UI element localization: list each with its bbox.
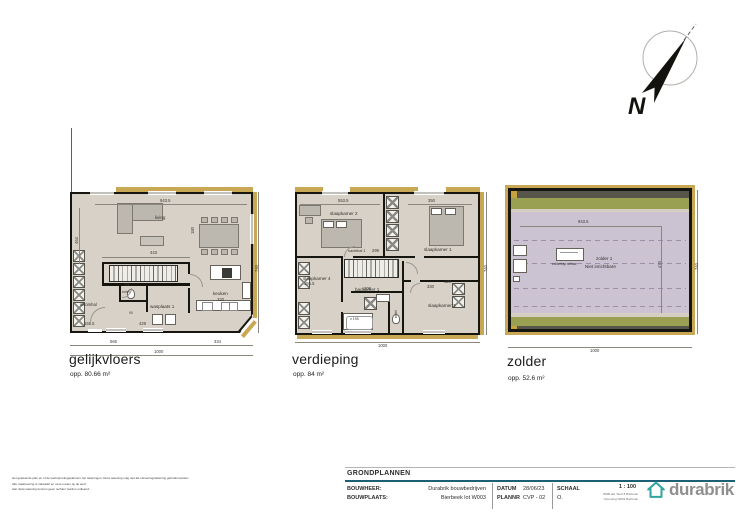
plan-area: opp. 80.66 m² [70, 371, 110, 378]
dim-line [295, 342, 480, 343]
dim-label: 943.5 [578, 220, 588, 224]
duct [513, 276, 520, 282]
dim-line [486, 192, 487, 335]
compass-rose: N [612, 14, 716, 118]
closet [73, 276, 85, 288]
dim-label: 330 [427, 285, 434, 289]
durabrik-logo-house-icon [645, 479, 667, 501]
interior-wall [297, 256, 341, 258]
disclaimer-line: Alle maatvoering is indicatief en na te … [12, 483, 87, 486]
closet [386, 238, 399, 251]
coffee-table [140, 236, 164, 246]
room-label: Niet inrichtbare [585, 265, 616, 270]
titleblock-section: GRONDPLANNEN [347, 470, 411, 477]
dim-label: 180 [191, 227, 195, 234]
duct [513, 259, 527, 273]
dim-line [79, 208, 80, 264]
dim-line [520, 226, 662, 227]
dim-label: 1000 [154, 350, 163, 354]
plan-title: verdieping [292, 351, 359, 367]
datum-label: DATUM [497, 486, 516, 492]
closet [73, 263, 85, 275]
closet [73, 289, 85, 301]
interior-wall [146, 302, 148, 312]
dim-line [408, 204, 472, 205]
room-label: zoldertrap schaar [552, 263, 577, 266]
dim-line [102, 257, 190, 258]
chair [201, 249, 208, 255]
dim-label: x 195 [350, 318, 359, 322]
dim-label: 1000 [378, 344, 387, 348]
chair [211, 249, 218, 255]
pillow [431, 208, 442, 215]
chair [201, 217, 208, 223]
dim-line [661, 226, 662, 313]
chair [221, 249, 228, 255]
plan-title: zolder [507, 353, 546, 369]
sofa-chaise [117, 203, 133, 234]
bouwheer-value: Durabrik bouwbedrijven [400, 486, 486, 492]
room-label: toilet [122, 291, 130, 295]
interior-wall [102, 262, 190, 264]
interior-wall [188, 262, 190, 274]
dim-line [300, 204, 380, 205]
room-label: slaapkamer 4 [303, 277, 331, 282]
facade-cladding [350, 187, 418, 192]
interior-wall [102, 262, 104, 286]
dishwasher [202, 302, 213, 311]
dim-label: 553.5 [338, 199, 348, 203]
desk [299, 205, 321, 216]
roof-band [511, 198, 689, 209]
washing-machine [152, 314, 163, 325]
room-label: slaapkamer 1 [424, 248, 452, 253]
pillow [445, 208, 456, 215]
roof-band [511, 317, 689, 326]
plan-area: opp. 52.6 m² [508, 375, 545, 382]
closet [452, 283, 465, 295]
dim-label: 120 [444, 280, 451, 284]
plan-title: gelijkvloers [69, 351, 141, 367]
dim-line [258, 192, 259, 333]
room-label: keuken [213, 292, 228, 297]
dim-label: 740 [695, 263, 699, 270]
window [345, 330, 371, 334]
interior-wall [383, 194, 385, 256]
dim-label: 1000 [590, 349, 599, 353]
chair [305, 217, 313, 224]
closet [386, 196, 399, 209]
dim-label: 350 [428, 199, 435, 203]
plannr-value: CVP - 02 [523, 495, 545, 501]
roof-band-accent [511, 191, 517, 198]
room-label: inkomhal [80, 303, 97, 307]
interior-wall [424, 256, 480, 258]
schaal-value: 1 : 100 [600, 484, 636, 490]
window [312, 330, 332, 334]
chair [231, 217, 238, 223]
facade-cladding [446, 187, 480, 192]
window [414, 191, 444, 195]
facade-cladding [253, 192, 257, 318]
dim-line [70, 345, 253, 346]
dim-label: 155.5 [304, 282, 314, 286]
window [90, 191, 114, 195]
interior-wall [119, 300, 148, 302]
dim-label: 740 [255, 265, 259, 272]
compass-north-label: N [628, 93, 646, 118]
roof-band [511, 326, 689, 329]
room-dim: 320 [217, 298, 224, 302]
schaal-sub: O. [557, 495, 563, 501]
room-label: badkamer 1 [355, 288, 379, 293]
staircase [109, 265, 178, 282]
dim-label: 151 [124, 284, 130, 287]
closet [73, 315, 85, 327]
window [250, 214, 254, 244]
plan-area: opp. 84 m² [293, 371, 324, 378]
closet [298, 316, 310, 329]
fine-print: Opmeting W003 Bierbeek [574, 497, 638, 501]
pillow [336, 221, 347, 228]
dim-line [95, 204, 247, 205]
roof-band-accent [511, 326, 517, 329]
bouwplaats-value: Bierbeek lot W003 [400, 495, 486, 501]
titleblock-divider [552, 483, 553, 509]
dim-label: 334 [214, 340, 221, 344]
facade-cladding [295, 187, 323, 192]
dim-line [508, 347, 692, 348]
facade-cladding [297, 335, 478, 339]
window [148, 191, 176, 195]
sink [376, 294, 390, 302]
datum-value: 28/06/23 [523, 486, 544, 492]
front-door-opening [88, 329, 102, 333]
dim-label: 299 [372, 249, 379, 253]
closet [298, 262, 310, 275]
chair [221, 217, 228, 223]
dim-label: 155.5 [84, 322, 94, 326]
dim-line [697, 190, 698, 334]
dim-label: 566 [110, 340, 117, 344]
chair [211, 217, 218, 223]
closet [386, 210, 399, 223]
room-label: slaapkamer 3 [428, 304, 456, 309]
disclaimer-line: Aan deze tekening kunnen geen rechten wo… [12, 488, 90, 491]
room-label: wasplaats 1 [150, 305, 174, 310]
dim-label: 429 [139, 322, 146, 326]
window [143, 328, 163, 332]
boundary-line [71, 128, 72, 192]
dim-label: 90 [129, 312, 133, 315]
window [322, 191, 348, 195]
facade-cladding [480, 192, 484, 335]
dim-label: 443 [150, 251, 157, 255]
duct [513, 245, 527, 256]
staircase [344, 259, 399, 278]
bouwplaats-label: BOUWPLAATS: [347, 495, 388, 501]
dim-label: 470 [658, 261, 662, 268]
facade-cladding [116, 187, 253, 192]
dim-label: 740 [484, 265, 488, 272]
bouwheer-label: BOUWHEER: [347, 486, 382, 492]
interior-wall [403, 280, 411, 282]
attic-hatch-line [560, 252, 578, 253]
chair [231, 249, 238, 255]
roof-band [511, 191, 689, 198]
room-label: zolder 1 [596, 257, 612, 262]
room-label: toilet [395, 310, 399, 318]
durabrik-logo-text: durabrik [669, 480, 734, 500]
attic-hatch [556, 248, 584, 261]
titleblock-top-rule [345, 467, 735, 468]
cooktop [222, 268, 232, 278]
interior-wall [402, 261, 404, 333]
closet [386, 224, 399, 237]
interior-wall [188, 288, 190, 313]
drawing-sheet: N [0, 0, 736, 520]
room-label: slaapkamer 2 [330, 212, 358, 217]
plannr-label: PLANNR [497, 495, 520, 501]
closet [298, 302, 310, 315]
window [106, 328, 126, 332]
window [204, 191, 232, 195]
dim-label: 943.5 [160, 199, 170, 203]
kitchen-counter [242, 282, 251, 299]
dim-label: 464 [75, 237, 79, 244]
disclaimer-line: Het getekende plan en of de werfopmeting… [12, 477, 189, 480]
room-label: living [155, 216, 165, 221]
sink [229, 302, 238, 311]
pillow [323, 221, 334, 228]
dryer [165, 314, 176, 325]
room-label: nachthal 1 [348, 250, 366, 254]
titleblock-divider [492, 483, 493, 509]
window [423, 330, 445, 334]
dining-table [199, 224, 239, 248]
interior-wall [341, 256, 343, 302]
